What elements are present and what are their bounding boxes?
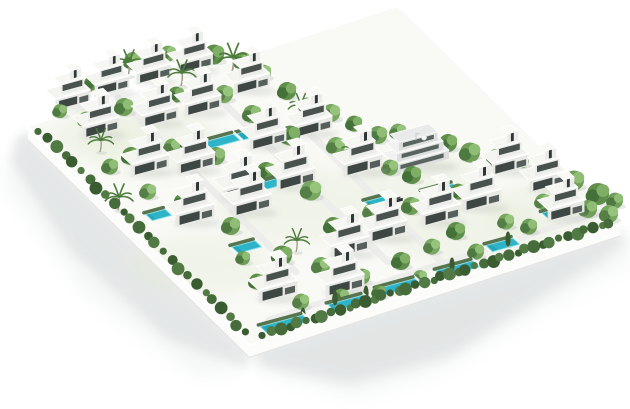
hedge-tree xyxy=(411,280,420,289)
hedge-tree xyxy=(315,310,328,323)
tree-canopy-light xyxy=(400,253,410,263)
hedge-tree xyxy=(160,248,167,255)
roofbox-window xyxy=(102,96,105,105)
hedge-tree xyxy=(443,268,456,281)
hedge-tree xyxy=(109,198,120,209)
hedge-tree xyxy=(90,182,103,195)
hedge-tree xyxy=(495,253,504,262)
roofbox-window xyxy=(161,85,164,94)
tree-canopy-light xyxy=(597,184,610,197)
cypress-shadow xyxy=(506,246,512,248)
roofbox-window xyxy=(113,56,116,64)
roofbox-window xyxy=(442,182,445,191)
hedge-tree xyxy=(258,332,265,339)
tree-canopy-light xyxy=(455,223,465,233)
roofbox-window xyxy=(279,258,282,267)
tree-canopy-light xyxy=(147,185,156,194)
roofbox-window xyxy=(197,130,200,139)
tree-canopy-light xyxy=(614,194,623,203)
tree-canopy-light xyxy=(286,83,296,93)
roofbox-window xyxy=(389,198,392,207)
tree-canopy-light xyxy=(310,182,322,194)
tree-canopy-light xyxy=(505,215,514,224)
roofbox-window xyxy=(315,95,318,104)
tree-canopy-light xyxy=(330,105,340,115)
roofbox-window xyxy=(253,53,256,62)
hedge-tree xyxy=(555,234,562,241)
villa-development-3d-render xyxy=(0,0,630,409)
tree-canopy-light xyxy=(215,148,225,158)
tree-canopy-light xyxy=(469,144,481,156)
hedge-tree xyxy=(125,213,135,223)
hedge-tree xyxy=(503,249,514,260)
tree-canopy-light xyxy=(411,167,421,177)
cypress-tree xyxy=(505,232,510,247)
roofbox-window xyxy=(269,108,272,117)
hedge-tree xyxy=(77,167,84,174)
roofbox-window xyxy=(351,214,354,223)
roofbox-window xyxy=(297,146,300,155)
roofbox-window xyxy=(567,179,570,188)
palm-shadow xyxy=(96,151,107,155)
roofbox-window xyxy=(346,252,349,261)
architectural-render-stage xyxy=(0,0,630,409)
tree-canopy-light xyxy=(109,160,118,169)
hedge-tree xyxy=(66,156,77,167)
hedge-tree xyxy=(50,140,63,153)
tree-canopy-light xyxy=(447,135,457,145)
roofbox-window xyxy=(196,33,199,42)
hedge-tree xyxy=(587,222,598,233)
roofbox-window xyxy=(364,132,367,141)
tree-canopy-light xyxy=(608,206,618,216)
hedge-tree xyxy=(215,301,228,314)
hedge-tree xyxy=(459,264,470,275)
hedge-tree xyxy=(226,312,235,321)
hedge-tree xyxy=(335,304,346,315)
hedge-tree xyxy=(579,225,588,234)
tree-canopy-light xyxy=(587,201,597,211)
tree-canopy-light xyxy=(213,46,225,58)
tree-canopy-light xyxy=(300,295,309,304)
hedge-tree xyxy=(148,237,159,248)
hedge-tree xyxy=(207,294,217,304)
tree-canopy-light xyxy=(377,127,387,137)
hedge-tree xyxy=(471,262,478,269)
roofbox-window xyxy=(244,157,247,166)
roofbox-window xyxy=(483,167,486,176)
roofbox-window xyxy=(253,172,256,181)
tree-canopy-light xyxy=(353,117,362,126)
hedge-tree xyxy=(291,317,302,328)
hedge-tree xyxy=(527,240,540,253)
clubhouse-dome xyxy=(421,135,426,140)
hedge-tree xyxy=(419,277,430,288)
hedge-tree xyxy=(275,323,288,336)
roofbox-window xyxy=(155,44,158,52)
hedge-tree xyxy=(603,219,613,229)
tree-canopy-light xyxy=(475,245,484,254)
tree-canopy-light xyxy=(289,127,301,139)
hedge-tree xyxy=(327,308,336,317)
roofbox-window xyxy=(511,133,514,142)
hedge-tree xyxy=(302,317,309,324)
tree-canopy-light xyxy=(59,105,67,113)
cypress-tree xyxy=(332,291,337,306)
hedge-tree xyxy=(101,190,110,199)
palm-shadow xyxy=(292,251,303,255)
tree-canopy-light xyxy=(389,161,398,170)
roofbox-window xyxy=(196,182,199,191)
hedge-tree xyxy=(42,133,52,143)
hedge-tree xyxy=(375,289,386,300)
roofbox-window xyxy=(204,74,207,83)
roofbox-window xyxy=(74,70,77,78)
hedge-tree xyxy=(230,320,241,331)
roofbox-window xyxy=(151,132,154,141)
tree-canopy-light xyxy=(573,172,585,184)
hedge-tree xyxy=(172,262,185,275)
hedge-tree xyxy=(183,271,192,280)
roofbox-window xyxy=(549,150,552,159)
tree-canopy-light xyxy=(242,252,250,260)
hedge-tree xyxy=(543,237,554,248)
hedge-tree xyxy=(34,128,41,135)
hedge-tree xyxy=(133,221,146,234)
hedge-tree xyxy=(191,278,202,289)
tree-canopy-light xyxy=(528,220,537,229)
hedge-tree xyxy=(359,295,372,308)
hedge-tree xyxy=(387,289,394,296)
tree-canopy-light xyxy=(431,240,440,249)
tree-canopy-light xyxy=(230,218,240,228)
hedge-tree xyxy=(242,328,249,335)
tree-canopy-light xyxy=(123,99,133,109)
tree-canopy-light xyxy=(223,86,233,96)
hedge-tree xyxy=(399,283,412,296)
